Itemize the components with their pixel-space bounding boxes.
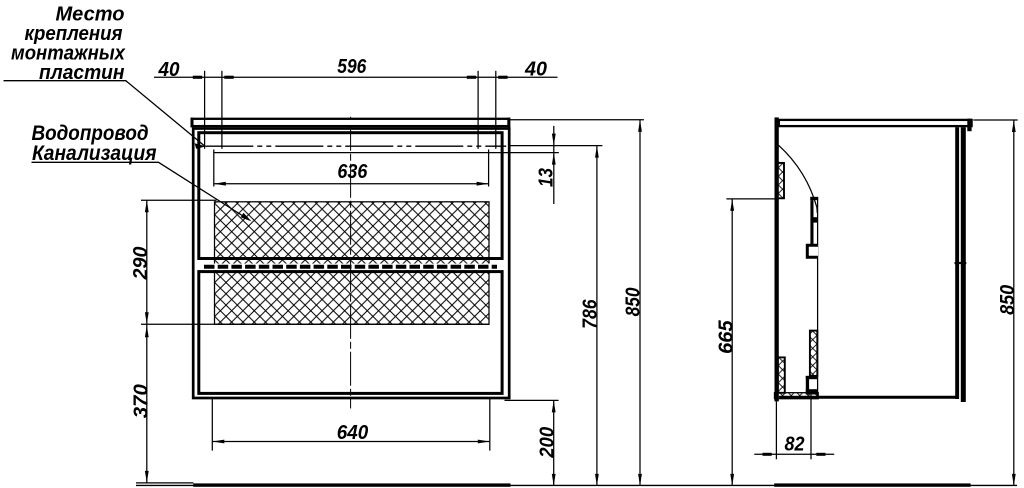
svg-text:Канализация: Канализация	[32, 141, 157, 165]
svg-text:290: 290	[129, 246, 152, 281]
svg-text:636: 636	[337, 160, 368, 183]
svg-text:40: 40	[158, 58, 180, 81]
svg-text:850: 850	[622, 287, 645, 316]
svg-text:200: 200	[535, 426, 558, 458]
svg-text:40: 40	[524, 57, 548, 80]
svg-text:850: 850	[996, 284, 1019, 315]
svg-text:596: 596	[337, 55, 366, 78]
svg-text:370: 370	[130, 384, 153, 419]
svg-text:786: 786	[578, 299, 601, 329]
svg-text:640: 640	[337, 421, 369, 444]
svg-text:13: 13	[534, 168, 557, 187]
svg-text:82: 82	[785, 433, 806, 456]
svg-text:665: 665	[714, 320, 737, 354]
